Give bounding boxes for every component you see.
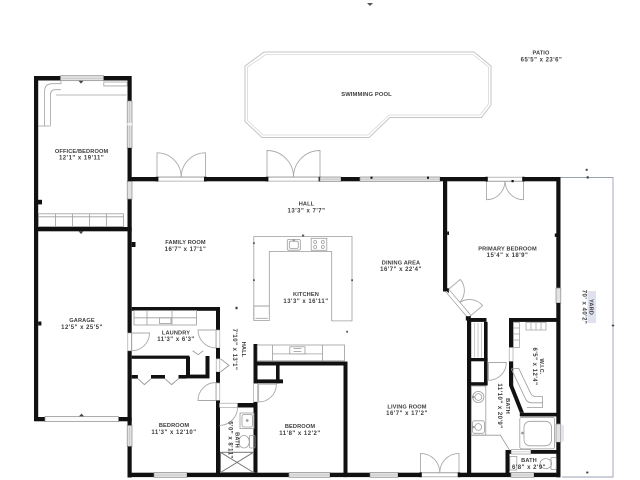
svg-text:65'5" x 23'6": 65'5" x 23'6" [521,58,563,64]
svg-text:PATIO: PATIO [533,51,550,57]
svg-text:BEDROOM: BEDROOM [285,424,315,430]
svg-text:13'3" x 16'11": 13'3" x 16'11" [283,299,328,305]
svg-text:11'3" x 6'3": 11'3" x 6'3" [157,337,195,343]
svg-text:11'10" x 20'9": 11'10" x 20'9" [496,383,502,428]
svg-text:13'3" x 7'7": 13'3" x 7'7" [288,208,326,214]
svg-text:LAUNDRY: LAUNDRY [162,330,190,336]
svg-text:W.I.C.: W.I.C. [538,358,544,374]
svg-text:SWIMMING POOL: SWIMMING POOL [341,92,392,98]
svg-text:12'5" x 25'5": 12'5" x 25'5" [61,325,103,331]
svg-text:HALL: HALL [299,202,315,208]
svg-text:11'3" x 12'10": 11'3" x 12'10" [151,430,196,436]
svg-text:15'4" x 18'9": 15'4" x 18'9" [487,253,529,259]
svg-text:11'8" x 12'2": 11'8" x 12'2" [279,431,320,437]
svg-text:6'8" x 2'9": 6'8" x 2'9" [512,465,546,471]
svg-text:16'7" x 17'2": 16'7" x 17'2" [386,411,428,417]
svg-text:PRIMARY BEDROOM: PRIMARY BEDROOM [478,246,537,252]
svg-text:5'0" x 8'11": 5'0" x 8'11" [227,421,233,459]
svg-text:12'1" x 19'11": 12'1" x 19'11" [59,156,104,162]
svg-text:BATH: BATH [234,432,240,448]
svg-text:BATH: BATH [504,398,510,414]
svg-text:16'7" x 17'1": 16'7" x 17'1" [165,247,207,253]
svg-text:FAMILY ROOM: FAMILY ROOM [165,240,206,246]
svg-text:7'10" x 13'1": 7'10" x 13'1" [231,329,237,371]
svg-text:16'7" x 22'4": 16'7" x 22'4" [380,267,422,273]
svg-text:GARAGE: GARAGE [69,318,95,324]
svg-text:BATH: BATH [521,458,537,464]
svg-text:HALL: HALL [240,342,246,358]
svg-text:DINING AREA: DINING AREA [382,260,420,266]
svg-text:OFFICE/BEDROOM: OFFICE/BEDROOM [55,149,109,155]
svg-text:YARD: YARD [587,299,593,315]
svg-text:LIVING ROOM: LIVING ROOM [387,404,426,410]
svg-text:6'5" x 12'4": 6'5" x 12'4" [531,348,537,386]
svg-text:70' x 40'2": 70' x 40'2" [581,290,587,325]
svg-text:KITCHEN: KITCHEN [293,292,319,298]
svg-text:BEDROOM: BEDROOM [159,423,189,429]
